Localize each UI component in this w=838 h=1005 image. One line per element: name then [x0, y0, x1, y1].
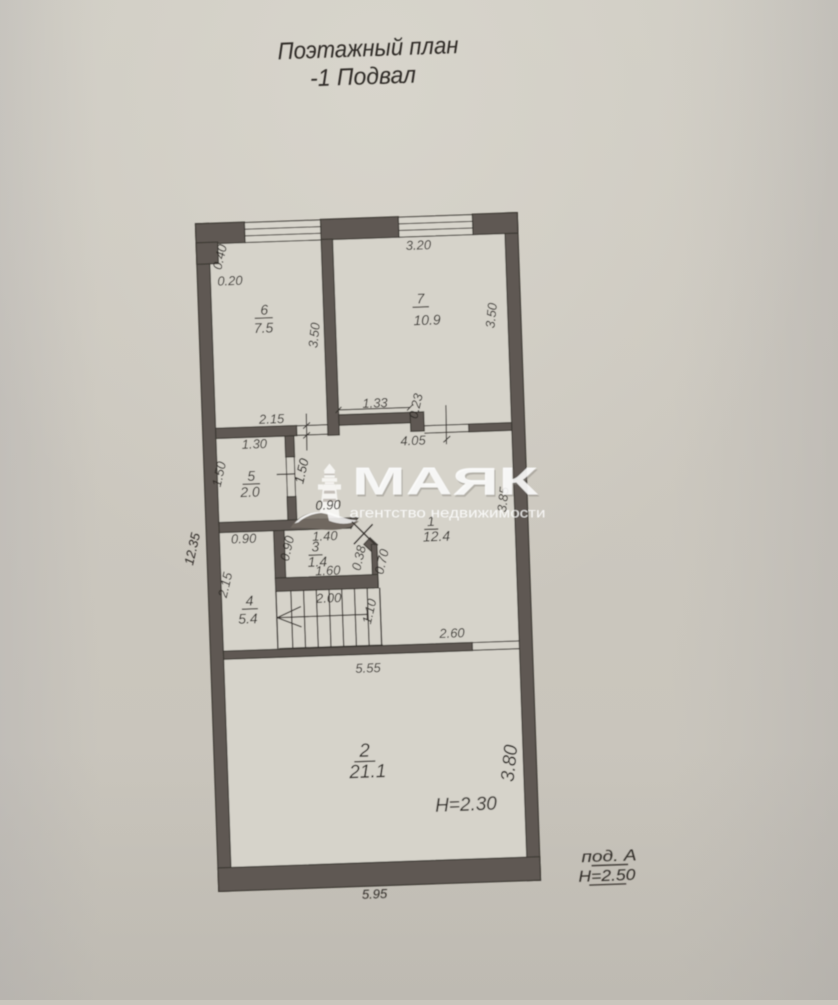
svg-text:0.90: 0.90 [231, 531, 258, 547]
svg-text:7.5: 7.5 [254, 319, 274, 336]
svg-text:МАЯК: МАЯК [352, 461, 538, 504]
svg-text:5: 5 [247, 468, 256, 484]
svg-text:2.60: 2.60 [438, 625, 466, 641]
svg-text:3: 3 [311, 538, 320, 554]
svg-text:10.9: 10.9 [413, 311, 441, 328]
svg-text:6: 6 [260, 302, 269, 318]
svg-text:2.00: 2.00 [315, 590, 343, 606]
svg-text:5.55: 5.55 [355, 660, 382, 676]
svg-text:1.60: 1.60 [315, 562, 342, 578]
svg-text:3.20: 3.20 [406, 237, 433, 253]
svg-text:3.80: 3.80 [498, 743, 523, 782]
svg-text:2.15: 2.15 [258, 411, 286, 427]
svg-text:5.95: 5.95 [362, 886, 389, 902]
svg-text:3.50: 3.50 [482, 301, 500, 328]
svg-text:агентство недвижимости: агентство недвижимости [350, 505, 546, 521]
svg-text:4.05: 4.05 [400, 432, 427, 448]
svg-text:2.0: 2.0 [239, 483, 260, 500]
svg-text:2: 2 [358, 741, 371, 762]
svg-text:1.30: 1.30 [241, 436, 268, 452]
svg-text:0.90: 0.90 [315, 497, 342, 513]
svg-text:0.20: 0.20 [217, 273, 244, 289]
svg-text:Н=2.50: Н=2.50 [578, 867, 636, 886]
svg-text:5.4: 5.4 [238, 610, 258, 627]
svg-text:21.1: 21.1 [348, 761, 387, 783]
svg-text:под. А: под. А [581, 848, 637, 867]
svg-text:1.33: 1.33 [362, 395, 389, 411]
svg-text:4: 4 [245, 592, 254, 608]
svg-text:Н=2.30: Н=2.30 [435, 793, 498, 816]
svg-text:3.50: 3.50 [305, 321, 323, 348]
svg-text:12.4: 12.4 [423, 528, 451, 545]
svg-text:-1 Подвал: -1 Подвал [310, 62, 417, 93]
